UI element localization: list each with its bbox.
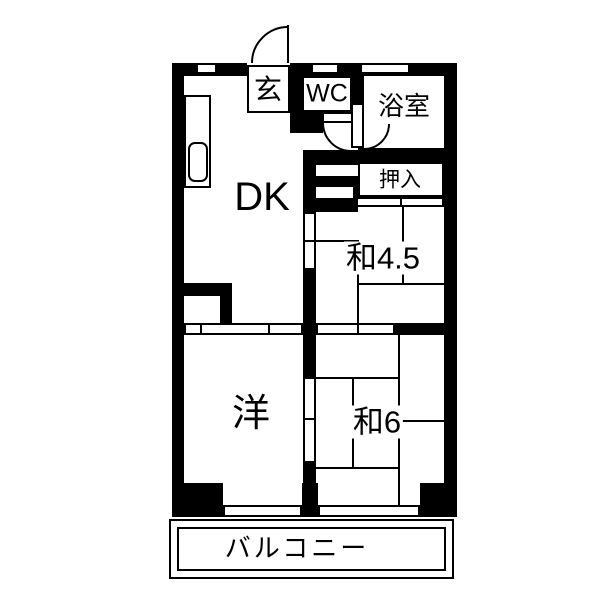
wall-right (444, 63, 457, 517)
wall-wc-bath (352, 76, 364, 104)
door-divider-tick (303, 418, 316, 420)
wc-door-arc (323, 123, 351, 151)
wall-center-upper (303, 270, 316, 377)
washroom-slot-1 (316, 165, 358, 176)
wall-bath-bottom (358, 148, 457, 162)
room-label-dk: DK (234, 177, 290, 217)
wall-left (172, 63, 184, 517)
window-top-1 (198, 65, 215, 72)
wall-bottom-left-block (172, 483, 223, 517)
room-label-closet: 押入 (379, 170, 421, 191)
sliding-door-tatami45-6 (316, 323, 395, 335)
window-top-3 (362, 65, 408, 72)
tatami-line (316, 467, 398, 469)
door-divider-tick (400, 197, 402, 207)
entrance-door-leaf (287, 25, 289, 63)
wall-center-lower (303, 463, 316, 517)
floor-plan: 玄 WC 浴室 押入 DK 和4.5 洋 和6 バルコニー (0, 0, 600, 600)
tatami-line (357, 283, 444, 285)
room-label-tatami6: 和6 (351, 406, 403, 439)
wall-tatami-divider (395, 323, 444, 335)
door-divider-tick (200, 323, 202, 335)
wall-wc-bottom (302, 112, 323, 133)
room-label-bath: 浴室 (378, 93, 430, 119)
entrance-door-arc (252, 27, 288, 63)
wall-dk-stub-h (184, 283, 232, 296)
room-label-genkan: 玄 (254, 76, 282, 104)
room-label-balcony: バルコニー (225, 535, 369, 561)
room-label-wc: WC (306, 82, 348, 107)
window-balcony-left (223, 505, 302, 517)
wall-washroom-block (303, 150, 358, 212)
wall-bottom-right-block (420, 483, 457, 517)
kitchen-sink (188, 142, 208, 182)
bath-door-leaf (351, 103, 364, 148)
sliding-door-western-tatami6 (303, 377, 316, 463)
window-balcony-right (318, 505, 420, 517)
door-divider-tick (303, 240, 316, 242)
tatami-line (398, 420, 444, 422)
washroom-slot-2 (316, 187, 353, 198)
tatami-line (316, 377, 398, 379)
room-label-tatami45: 和4.5 (344, 242, 422, 275)
door-divider-tick (357, 323, 359, 335)
window-top-2 (313, 65, 337, 72)
bath-door-arc (364, 124, 389, 149)
room-label-western: 洋 (232, 395, 270, 433)
door-divider-tick (268, 323, 270, 335)
